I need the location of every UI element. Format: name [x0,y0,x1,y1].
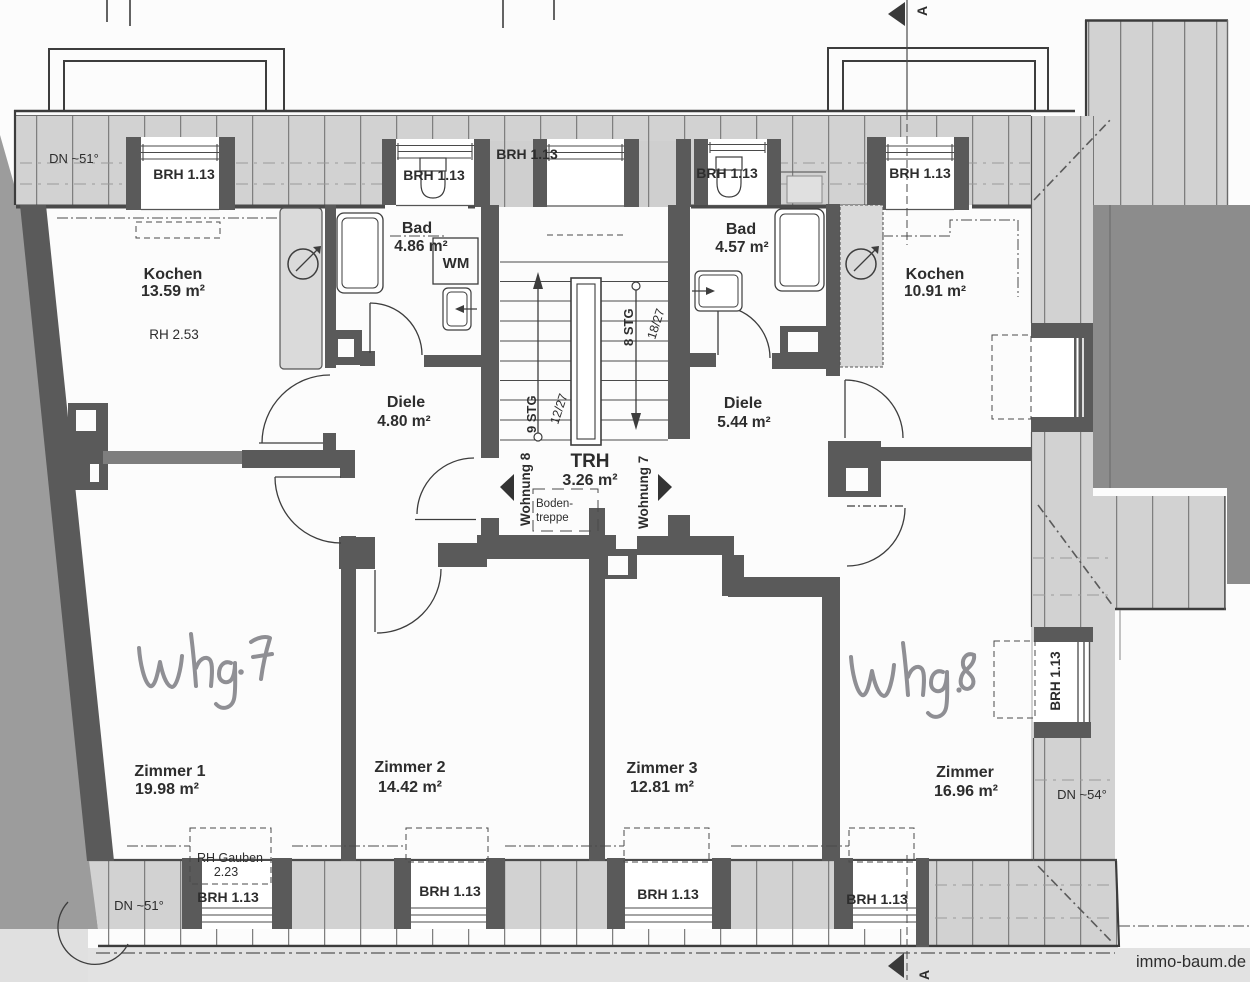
svg-text:Kochen: Kochen [144,266,203,283]
svg-text:BRH 1.13: BRH 1.13 [846,891,908,907]
svg-text:BRH 1.13: BRH 1.13 [197,889,259,905]
svg-text:Boden-: Boden- [536,498,573,510]
svg-text:BRH 1.13: BRH 1.13 [496,146,558,162]
svg-text:14.42 m²: 14.42 m² [378,779,442,796]
svg-text:BRH 1.13: BRH 1.13 [403,167,465,183]
svg-text:3.26 m²: 3.26 m² [562,472,617,489]
svg-text:TRH: TRH [570,451,609,472]
svg-text:treppe: treppe [536,512,569,524]
svg-text:immo-baum.de: immo-baum.de [1136,953,1246,971]
svg-text:Wohnung 8: Wohnung 8 [518,452,533,526]
svg-text:BRH 1.13: BRH 1.13 [696,165,758,181]
svg-text:Zimmer: Zimmer [936,764,994,781]
svg-text:19.98 m²: 19.98 m² [135,781,199,798]
svg-text:BRH 1.13: BRH 1.13 [1048,651,1063,711]
svg-text:Bad: Bad [726,221,756,238]
svg-text:DN ~54°: DN ~54° [1057,787,1107,802]
svg-text:10.91 m²: 10.91 m² [904,283,966,300]
svg-text:Bad: Bad [402,220,432,237]
svg-text:DN ~51°: DN ~51° [49,151,99,166]
svg-text:4.57 m²: 4.57 m² [715,239,768,256]
svg-text:WM: WM [443,255,470,272]
svg-text:9 STG: 9 STG [524,395,539,433]
svg-text:A: A [914,6,930,16]
svg-text:4.86 m²: 4.86 m² [394,238,447,255]
svg-text:12.81 m²: 12.81 m² [630,779,694,796]
svg-text:RH 2.53: RH 2.53 [149,327,199,342]
svg-text:RH Gauben: RH Gauben [197,851,263,865]
svg-text:16.96 m²: 16.96 m² [934,783,998,800]
svg-text:BRH 1.13: BRH 1.13 [419,883,481,899]
svg-text:A: A [916,970,932,980]
svg-text:Zimmer 2: Zimmer 2 [374,759,445,776]
svg-text:BRH 1.13: BRH 1.13 [637,886,699,902]
svg-text:13.59 m²: 13.59 m² [141,283,205,300]
svg-text:Diele: Diele [387,394,425,411]
svg-text:Wohnung 7: Wohnung 7 [636,456,651,529]
svg-text:BRH 1.13: BRH 1.13 [889,165,951,181]
svg-text:8 STG: 8 STG [621,308,636,346]
svg-text:Zimmer 3: Zimmer 3 [626,760,697,777]
svg-text:DN ~51°: DN ~51° [114,898,164,913]
svg-text:2.23: 2.23 [214,865,238,879]
svg-text:4.80 m²: 4.80 m² [377,413,430,430]
svg-text:BRH 1.13: BRH 1.13 [153,166,215,182]
svg-text:Zimmer 1: Zimmer 1 [134,763,205,780]
svg-text:Kochen: Kochen [906,266,965,283]
svg-text:5.44 m²: 5.44 m² [717,414,770,431]
svg-text:Diele: Diele [724,395,762,412]
